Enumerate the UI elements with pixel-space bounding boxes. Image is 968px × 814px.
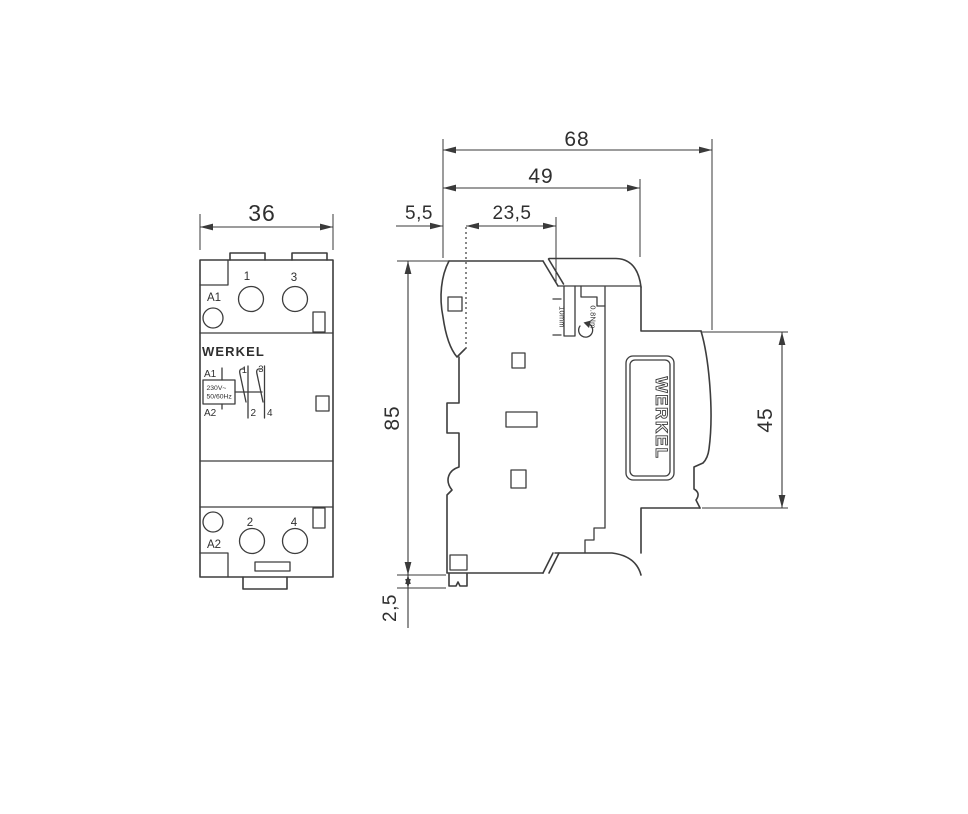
side-hole-lower (511, 470, 526, 488)
side-hole-bottom (450, 555, 467, 570)
front-bottom-left-notch (200, 553, 228, 577)
side-front-depth-dimension: 23,5 (466, 203, 556, 283)
terminal-hole-1 (239, 287, 264, 312)
dim-45: 45 (754, 407, 777, 432)
terminal-a2-label: A2 (207, 539, 221, 551)
front-top-left-notch (200, 260, 228, 285)
contactor-dimension-drawing: 36 1 3 A1 WERKEL A1 230V~ 50/60Hz A2 (0, 0, 968, 814)
front-din-clip-tab (243, 577, 287, 589)
terminal-hole-2 (240, 529, 265, 554)
terminal-hole-4 (283, 529, 308, 554)
dim-68: 68 (564, 128, 589, 151)
side-view: 68 49 5,5 23,5 (380, 128, 788, 628)
terminal-3-label: 3 (291, 272, 297, 284)
side-brand-logo: WERKEL (652, 377, 671, 460)
terminal-hole-a1 (203, 308, 223, 328)
schematic-p1: 1 (242, 365, 247, 376)
schematic-p4: 4 (267, 408, 273, 419)
side-din-clip-tab (449, 574, 467, 586)
side-brand-plate: WERKEL (626, 356, 674, 480)
side-body-depth-dimension: 49 (443, 165, 640, 257)
torque-annotation: 0.8Nm (579, 305, 598, 337)
terminal-2-label: 2 (247, 517, 253, 529)
dim-23-5: 23,5 (493, 203, 532, 224)
technical-drawing-page: 36 1 3 A1 WERKEL A1 230V~ 50/60Hz A2 (0, 0, 968, 814)
torque-arrow-icon (579, 324, 593, 337)
terminal-hole-3 (283, 287, 308, 312)
front-side-slot-top (313, 312, 325, 332)
side-hole-upper (512, 353, 525, 368)
schematic-frequency: 50/60Hz (207, 394, 233, 401)
front-schematic: A1 230V~ 50/60Hz A2 1 2 3 4 (203, 364, 273, 419)
side-total-depth-dimension: 68 (443, 128, 712, 330)
dim-49: 49 (528, 165, 553, 188)
terminal-4-label: 4 (291, 517, 298, 529)
front-top-tab-left (230, 253, 265, 260)
front-din-slot (255, 562, 290, 571)
dim-85: 85 (381, 405, 404, 430)
front-width-dimension: 36 (200, 200, 333, 250)
front-top-tab-right (292, 253, 327, 260)
side-din-offset-dimension: 5,5 (396, 203, 443, 229)
schematic-a1: A1 (204, 369, 217, 380)
schematic-p2: 2 (251, 408, 257, 419)
terminal-1-label: 1 (244, 271, 250, 283)
side-front-height-dimension: 45 (702, 332, 788, 508)
front-brand-logo: WERKEL (202, 344, 265, 359)
side-clip-offset-dimension: 2,5 (380, 575, 446, 628)
side-hole-middle (506, 412, 537, 427)
dim-2-5: 2,5 (380, 594, 401, 622)
dim-5-5: 5,5 (405, 203, 433, 224)
schematic-voltage: 230V~ (207, 385, 227, 392)
front-side-slot-bottom (313, 508, 325, 528)
front-side-slot-mid (316, 396, 329, 411)
schematic-a2: A2 (204, 408, 217, 419)
front-view: 36 1 3 A1 WERKEL A1 230V~ 50/60Hz A2 (200, 200, 333, 589)
terminal-hole-a2 (203, 512, 223, 532)
side-height-dimension: 85 (381, 261, 449, 575)
strip-length-text: 10mm (558, 306, 567, 328)
terminal-a1-label: A1 (207, 292, 221, 304)
side-hole-hook (448, 297, 462, 311)
dim-36: 36 (248, 200, 276, 226)
schematic-p3: 3 (258, 364, 263, 375)
